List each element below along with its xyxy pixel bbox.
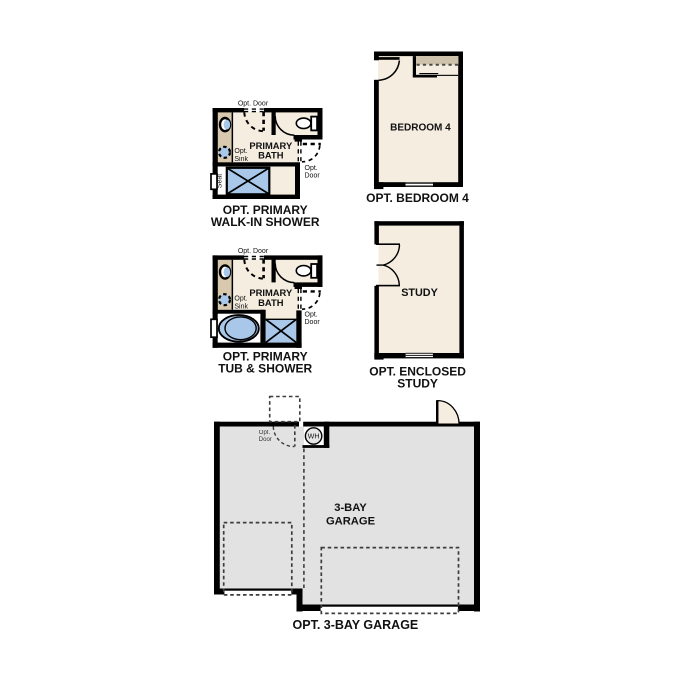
svg-text:STUDY: STUDY xyxy=(397,377,438,391)
svg-text:STUDY: STUDY xyxy=(401,287,438,299)
svg-text:Opt.: Opt. xyxy=(259,430,271,436)
svg-text:Sink: Sink xyxy=(234,303,248,310)
svg-text:Door: Door xyxy=(259,437,272,443)
svg-text:Opt.: Opt. xyxy=(305,312,318,319)
svg-text:Opt.: Opt. xyxy=(234,148,247,155)
svg-text:3-BAY: 3-BAY xyxy=(334,502,367,514)
svg-text:WH: WH xyxy=(308,434,320,441)
svg-text:Door: Door xyxy=(305,319,321,326)
svg-text:Door: Door xyxy=(305,173,321,180)
svg-text:Opt. Door: Opt. Door xyxy=(238,248,269,255)
svg-text:Opt.: Opt. xyxy=(234,295,247,302)
svg-text:WALK-IN SHOWER: WALK-IN SHOWER xyxy=(211,215,320,229)
svg-text:OPT. 3-BAY GARAGE: OPT. 3-BAY GARAGE xyxy=(293,618,419,632)
svg-text:GARAGE: GARAGE xyxy=(326,515,376,527)
svg-text:Seat: Seat xyxy=(217,174,224,188)
svg-text:Opt. Door: Opt. Door xyxy=(238,101,269,108)
svg-text:BEDROOM 4: BEDROOM 4 xyxy=(390,123,451,134)
svg-text:TUB & SHOWER: TUB & SHOWER xyxy=(218,362,312,376)
svg-text:Opt.: Opt. xyxy=(305,165,318,172)
svg-text:BATH: BATH xyxy=(258,150,284,161)
svg-text:OPT. BEDROOM 4: OPT. BEDROOM 4 xyxy=(366,191,469,205)
svg-text:Sink: Sink xyxy=(234,156,248,163)
svg-text:BATH: BATH xyxy=(258,297,284,308)
